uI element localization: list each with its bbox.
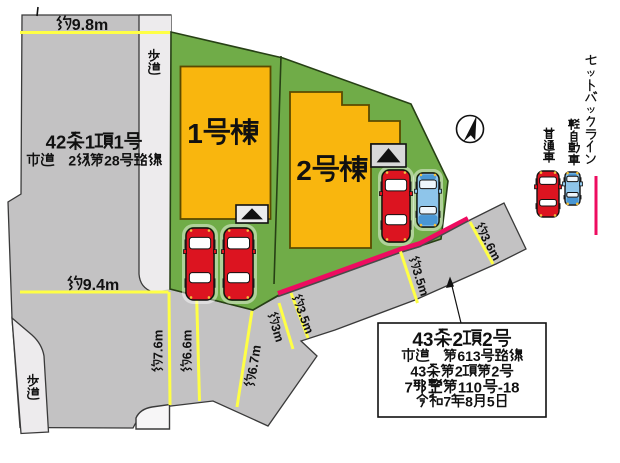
svg-text:43: 43 [412, 330, 433, 351]
svg-text:7.6m: 7.6m [151, 330, 166, 360]
svg-text:43: 43 [410, 365, 426, 381]
svg-text:28: 28 [104, 153, 120, 169]
svg-text:2: 2 [296, 155, 312, 186]
svg-text:613: 613 [457, 348, 481, 364]
svg-text:2: 2 [482, 330, 493, 351]
svg-text:6.6m: 6.6m [180, 330, 195, 360]
svg-text:-18: -18 [498, 379, 520, 396]
svg-text:5: 5 [487, 394, 495, 410]
svg-text:1: 1 [85, 132, 95, 153]
svg-text:2: 2 [68, 153, 76, 169]
svg-text:1: 1 [114, 132, 124, 153]
svg-text:8: 8 [465, 394, 473, 410]
svg-text:1: 1 [187, 118, 203, 149]
svg-text:9.4m: 9.4m [83, 277, 119, 294]
svg-text:42: 42 [46, 132, 67, 153]
svg-text:2: 2 [455, 365, 463, 381]
svg-text:7: 7 [443, 394, 451, 410]
svg-text:2: 2 [491, 365, 499, 381]
svg-text:7: 7 [404, 379, 412, 396]
svg-text:9.8m: 9.8m [72, 17, 108, 34]
